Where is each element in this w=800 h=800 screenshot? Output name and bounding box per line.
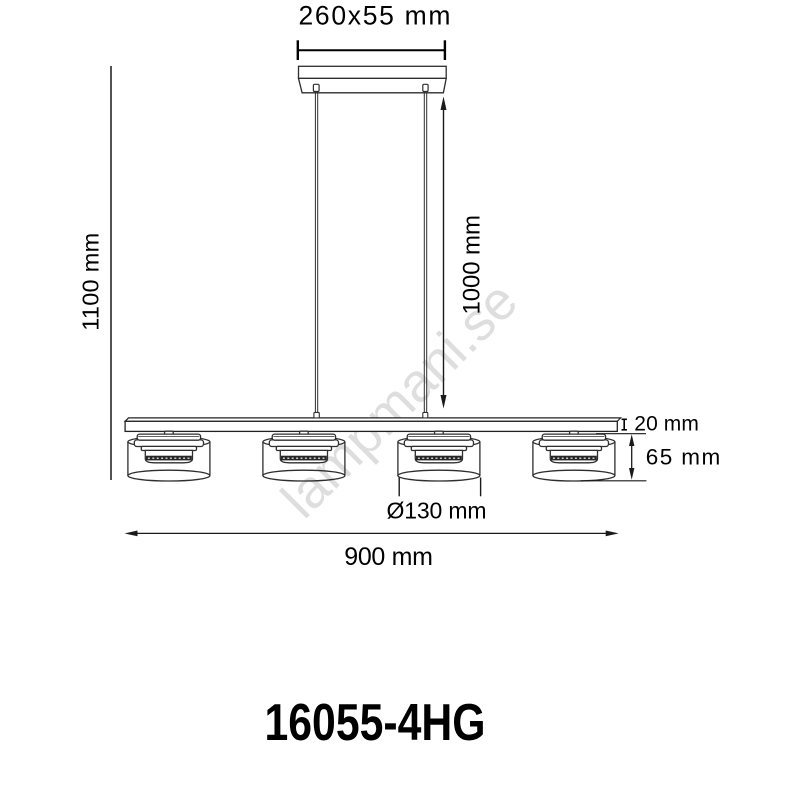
svg-text:1100 mm: 1100 mm bbox=[77, 233, 103, 331]
svg-text:65 mm: 65 mm bbox=[646, 445, 720, 470]
svg-text:20 mm: 20 mm bbox=[634, 412, 699, 435]
svg-text:Ø130 mm: Ø130 mm bbox=[387, 498, 487, 524]
svg-text:260x55 mm: 260x55 mm bbox=[299, 0, 451, 30]
svg-text:900 mm: 900 mm bbox=[344, 543, 433, 571]
svg-text:1000 mm: 1000 mm bbox=[459, 215, 486, 315]
svg-text:16055-4HG: 16055-4HG bbox=[265, 694, 486, 752]
